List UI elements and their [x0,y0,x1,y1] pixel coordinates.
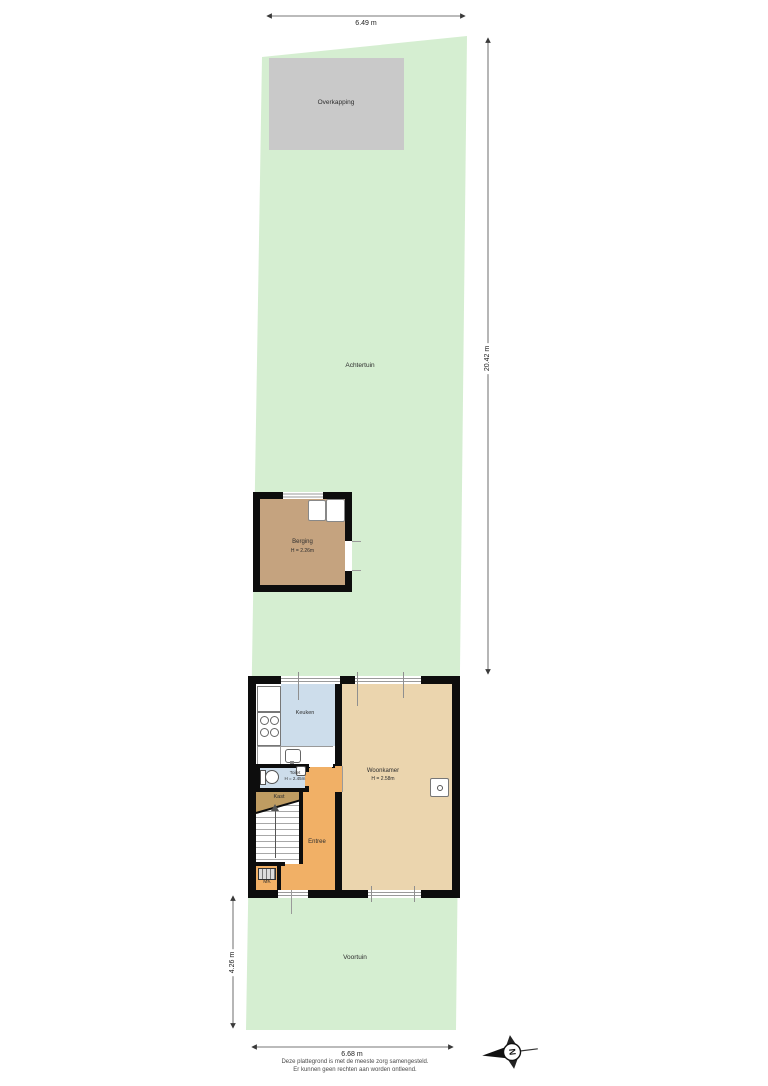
woonkamer-label: Woonkamer [353,768,413,776]
window [355,676,421,684]
toilet-height-label: H = 2.45m [276,776,314,782]
stairs-arrow-line [275,811,276,858]
stove-icon [257,712,281,746]
front-door-path-line [291,890,292,914]
window-mullion [371,886,372,902]
mk-wall [277,862,281,890]
dimension-label-top: 6.49 m [326,11,406,32]
window-mullion [357,672,358,706]
entree-woonkamer-door-opening [335,766,343,792]
compass-north-label: N [507,1048,518,1056]
overkapping-label: Overkapping [276,99,396,107]
front-garden-label: Voortuin [315,954,395,962]
disclaimer-line-2: Er kunnen geen rechten aan worden ontlee… [215,1067,495,1075]
stairs-wall [299,792,303,864]
window-mullion [298,672,299,700]
mk-label: MK [256,879,278,886]
storage-box-icon [308,500,326,521]
plot-base [0,0,768,1086]
back-garden-label: Achtertuin [320,362,400,370]
door-jamb-mark [352,570,361,571]
disclaimer-line-1: Deze plattegrond is met de meeste zorg s… [215,1059,495,1067]
door-jamb-mark [352,541,361,542]
entree-label: Entree [297,839,337,847]
window-mullion [414,886,415,902]
storage-box-icon [326,499,345,522]
woonkamer-height-label: H = 2.58m [353,776,413,783]
window [281,676,340,684]
fridge-icon [257,686,281,712]
window-mullion [403,672,404,698]
keuken-label: Keuken [282,710,328,717]
dimension-label-left: 4.26 m [208,952,258,972]
heater-icon [430,778,449,797]
dimension-label-right: 20.42 m [463,348,513,368]
toilet-label: Toilet [276,770,314,776]
front-door-opening [278,890,308,898]
compass-icon: N [474,1022,554,1086]
berging-door-opening [345,541,352,571]
floorplan-canvas: Overkapping Achtertuin Voortuin Berging … [0,0,768,1086]
berging-label: Berging [260,539,345,547]
berging-window [283,492,323,499]
berging-height-label: H = 2.26m [260,548,345,555]
stairs-arrow-icon [271,804,279,811]
kast-label: Kast [258,794,300,801]
